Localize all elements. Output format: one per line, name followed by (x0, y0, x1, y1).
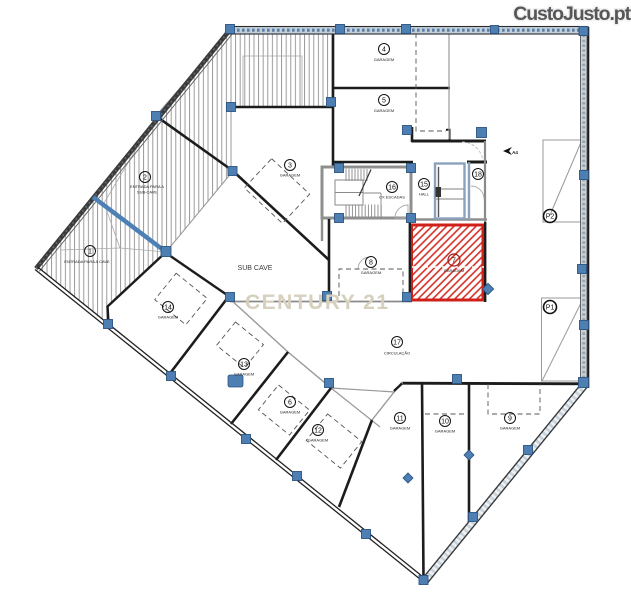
svg-text:CIRCULAÇÃO: CIRCULAÇÃO (384, 351, 410, 356)
svg-text:7: 7 (452, 258, 456, 265)
svg-text:CustoJusto.pt: CustoJusto.pt (513, 3, 631, 25)
svg-text:GARAGEM: GARAGEM (361, 270, 381, 275)
svg-text:4: 4 (382, 47, 386, 54)
svg-text:15: 15 (420, 182, 428, 189)
svg-text:SUB CAVE: SUB CAVE (238, 265, 273, 272)
svg-text:ENTRADA PARA A: ENTRADA PARA A (130, 184, 164, 189)
svg-text:GARAGEM: GARAGEM (280, 410, 300, 415)
svg-text:9: 9 (508, 416, 512, 423)
svg-text:10: 10 (441, 419, 449, 426)
svg-text:P2: P2 (546, 214, 555, 221)
svg-text:14: 14 (164, 305, 172, 312)
svg-text:GARAGEM: GARAGEM (158, 315, 178, 320)
svg-text:GARAGEM: GARAGEM (500, 426, 520, 431)
svg-text:3: 3 (288, 163, 292, 170)
svg-text:GARAGEM: GARAGEM (280, 173, 300, 178)
svg-text:2: 2 (143, 175, 147, 182)
svg-text:GARAGEM: GARAGEM (308, 438, 328, 443)
svg-text:17: 17 (393, 340, 401, 347)
svg-text:GARAGEM: GARAGEM (390, 426, 410, 431)
svg-text:P1: P1 (546, 305, 555, 312)
svg-text:6: 6 (288, 400, 292, 407)
svg-text:CENTURY 21: CENTURY 21 (245, 291, 390, 314)
svg-text:GARAGEM: GARAGEM (374, 57, 394, 62)
svg-text:8: 8 (369, 260, 373, 267)
svg-text:16: 16 (388, 185, 396, 192)
svg-text:5: 5 (382, 98, 386, 105)
svg-text:CX ESCADAS: CX ESCADAS (379, 195, 405, 200)
svg-text:A4: A4 (512, 150, 518, 155)
svg-text:SUB-CAVE: SUB-CAVE (137, 190, 157, 195)
svg-text:GARAGEM: GARAGEM (374, 108, 394, 113)
svg-text:HALL: HALL (419, 192, 430, 197)
svg-text:GARAGEM: GARAGEM (444, 268, 464, 273)
svg-text:GARAGEM: GARAGEM (435, 429, 455, 434)
svg-text:13: 13 (240, 362, 248, 369)
svg-text:12: 12 (314, 428, 322, 435)
svg-text:ENTRADA PARA A CAVE: ENTRADA PARA A CAVE (64, 259, 110, 264)
svg-text:GARAGEM: GARAGEM (234, 372, 254, 377)
svg-text:18: 18 (474, 172, 482, 179)
svg-text:11: 11 (396, 416, 403, 423)
svg-text:1: 1 (88, 249, 92, 256)
